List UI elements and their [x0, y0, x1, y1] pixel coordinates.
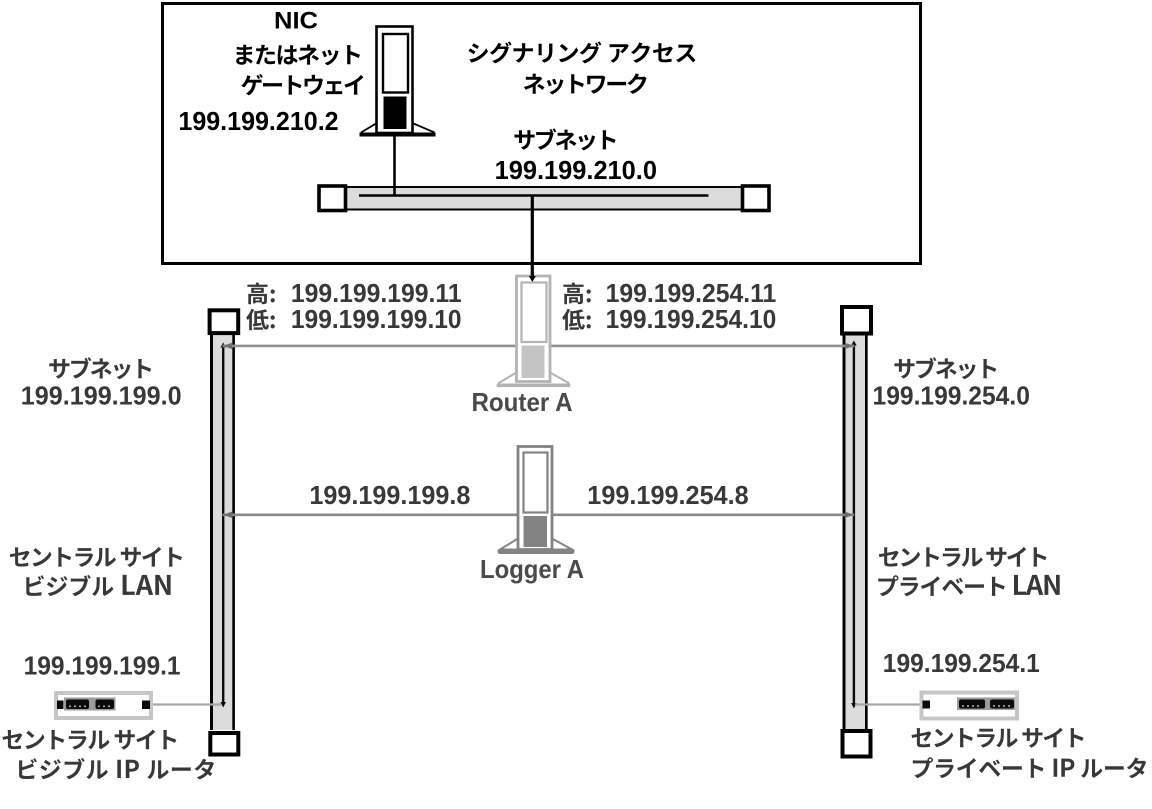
svg-text:199.199.199.10: 199.199.199.10 [291, 304, 462, 334]
svg-text:Logger A: Logger A [480, 554, 584, 584]
svg-text:199.199.199.8: 199.199.199.8 [309, 480, 470, 510]
svg-text:Router A: Router A [472, 387, 573, 417]
svg-text:NIC: NIC [274, 8, 318, 35]
svg-text:199.199.254.10: 199.199.254.10 [606, 304, 777, 334]
svg-text:199.199.199.0: 199.199.199.0 [21, 380, 182, 410]
svg-text:199.199.254.8: 199.199.254.8 [587, 480, 748, 510]
svg-text:199.199.254.0: 199.199.254.0 [873, 381, 1030, 411]
svg-text:199.199.254.1: 199.199.254.1 [883, 648, 1040, 678]
svg-text:199.199.210.2: 199.199.210.2 [178, 106, 338, 136]
svg-text:199.199.199.1: 199.199.199.1 [24, 651, 181, 681]
svg-text:199.199.210.0: 199.199.210.0 [495, 155, 657, 185]
